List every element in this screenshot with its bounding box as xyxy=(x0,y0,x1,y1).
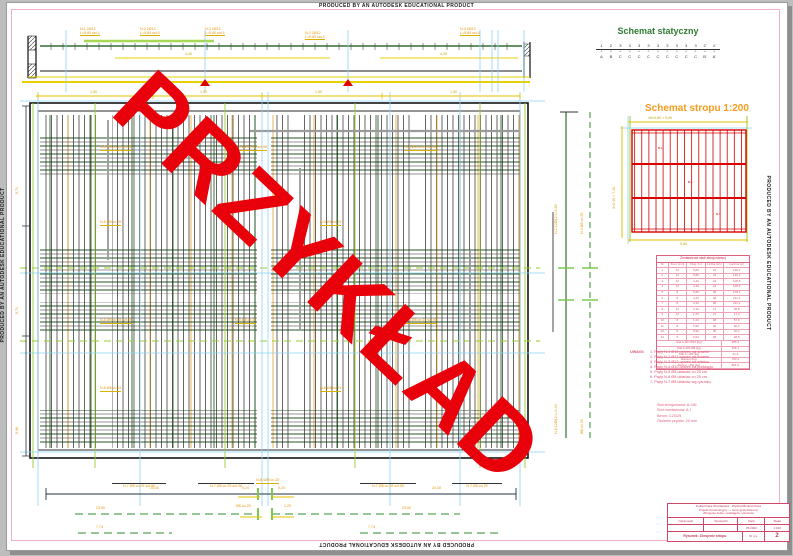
bottom-dimensions xyxy=(46,488,516,533)
beam-label: N-2 2Ø12L=5,80 szt.4 xyxy=(305,31,325,40)
materials-block: Stal zbrojeniowa: A-IIINStal montażowa: … xyxy=(657,403,697,424)
note-item: 6. Pręty N-6 Ø8 układać co 25 cm xyxy=(650,375,713,380)
dim-label: 24,40 xyxy=(150,487,159,491)
static-scheme: Schemat statyczny 123333333332'1' ▵▵▵▵▵▵… xyxy=(596,26,720,59)
drawing-number-value: 2 xyxy=(764,532,789,541)
right-schedule-label: N-2 12Ø12 L=5,80 xyxy=(554,204,558,234)
left-dim: 5,74 xyxy=(15,307,19,314)
notes-list: 1. Pręty N-1 Ø12 oprzeć na ścianie2. Prę… xyxy=(650,350,713,384)
right-bar-schedule xyxy=(553,112,598,438)
top-dim: 1,50 xyxy=(450,90,457,94)
tb-label: Opracował xyxy=(668,518,703,524)
dim-label: 0,24 xyxy=(278,487,285,491)
dim-label: 7,74 xyxy=(368,526,375,530)
dim-label: 23,90 xyxy=(402,507,411,511)
drawing-title: Rysunek: Zbrojenie stropu xyxy=(668,534,742,538)
tb-value xyxy=(703,525,737,531)
right-schedule-label: N-4 Ø8 co 25 xyxy=(580,213,584,234)
title-block-values: 05.2023 1:100 xyxy=(668,525,789,532)
note-item: 5. Pręty N-5 Ø8 układać co 25 cm xyxy=(650,370,713,375)
slab-dim-bottom: 9,84 xyxy=(680,242,687,246)
tb-value xyxy=(668,525,703,531)
tb-label: Data xyxy=(737,518,764,524)
steel-table-rows: 1125,80 24139,2 2125,80 24139,2 3124,40 … xyxy=(657,268,749,341)
plan-label: N-6 Ø8 co 25 xyxy=(320,387,341,392)
beam-section xyxy=(22,30,530,92)
material-line: Otulenie prętów: 20 mm xyxy=(657,419,697,424)
beam-dim: 4,40 xyxy=(185,52,192,56)
dim-label: 7,74 xyxy=(96,526,103,530)
beam-label: N-1 2Ø12L=5,80 szt.4 xyxy=(80,27,100,36)
tb-label: Sprawdził xyxy=(703,518,737,524)
slab-dim-left: 3×2,40 = 7,20 xyxy=(612,187,616,209)
col-header: Śred. [mm] xyxy=(668,263,687,267)
col-header: Dług. [m] xyxy=(686,263,705,267)
col-header: Łącznie [m] xyxy=(723,263,749,267)
title-block-labels: Opracował Sprawdził Data Skala xyxy=(668,518,789,525)
note-item: 7. Pręty N-7 Ø8 układać wg rysunku xyxy=(650,380,713,385)
left-dim: 5,96 xyxy=(15,427,19,434)
dim-label: 0,24 xyxy=(242,487,249,491)
plan-label: N-5 Ø8 co 25 xyxy=(235,319,256,324)
plan-label: N-5 Ø8 co 25 szt.96 xyxy=(405,146,437,151)
title-block-head-line: Zbrojenie żeber, podciągów i wieńców xyxy=(668,512,789,516)
slab-scheme-grid xyxy=(620,116,752,244)
sheet-overlay: PRODUCED BY AN AUTODESK EDUCATIONAL PROD… xyxy=(0,0,793,556)
cad-sheet: { "banner": {"text": "PRODUCED BY AN AUT… xyxy=(0,0,793,556)
slab-cell-label: B-1 xyxy=(688,180,693,184)
dim-label: 24,40 xyxy=(432,487,441,491)
static-scheme-numbers: 123333333332'1' xyxy=(596,43,720,48)
dim-label: 1,20 xyxy=(284,505,291,509)
slab-cell-label: B-1 xyxy=(716,212,721,216)
right-schedule-label: Ø8 co 25 xyxy=(580,419,584,434)
beam-label: N-3 2Ø12L=5,80 szt.4 xyxy=(205,27,225,36)
notes-label: UWAGI: xyxy=(630,350,644,355)
title-block-head: Politechnika Wrocławska · Wydział Budown… xyxy=(668,504,789,518)
plan-label: N-6 Ø8 co 25 xyxy=(100,387,121,392)
title-block: Politechnika Wrocławska · Wydział Budown… xyxy=(667,503,790,542)
beam-label: N-4 2Ø12L=5,80 szt.4 xyxy=(460,27,480,36)
title-block-bottom: Rysunek: Zbrojenie stropu Nr rys. 2 xyxy=(668,532,789,541)
static-scheme-letters: ABCCCCCCCCCB'A' xyxy=(596,54,720,59)
tb-value: 1:100 xyxy=(764,525,789,531)
plan-label: N-6 Ø8 co 25 xyxy=(100,221,121,226)
beam-dim: 4,40 xyxy=(440,52,447,56)
slab-cell-label: B-1 xyxy=(658,146,663,150)
dim-label: 23,90 xyxy=(96,507,105,511)
slab-scheme-title: Schemat stropu 1:200 xyxy=(645,103,749,114)
tb-label: Skala xyxy=(764,518,789,524)
col-header: Nr xyxy=(657,263,668,267)
note-item: 4. Pręty N-4 Ø10 oprzeć na podciągu xyxy=(650,365,713,370)
dim-label: Ø8 co 25 xyxy=(236,505,251,509)
drawing-number-label: Nr rys. xyxy=(742,532,764,541)
top-dim: 1,50 xyxy=(315,90,322,94)
slab-dim-top: 16×0,60 = 9,60 xyxy=(648,116,672,120)
static-scheme-title: Schemat statyczny xyxy=(596,26,720,36)
tb-value: 05.2023 xyxy=(737,525,764,531)
bottom-center-label: N-8 4Ø8 co 25 xyxy=(256,479,279,484)
left-dim: 5,74 xyxy=(15,187,19,194)
col-header: Liczba [szt.] xyxy=(705,263,724,267)
top-dim: 1,50 xyxy=(90,90,97,94)
beam-label: N-2 2Ø12L=5,80 szt.4 xyxy=(140,27,160,36)
plan-label: N-5 Ø8 co 25 szt.96 xyxy=(100,319,132,324)
bottom-overbar-label: N-7 Ø8 co 25 szt.96 xyxy=(360,483,416,488)
notes-block: UWAGI: 1. Pręty N-1 Ø12 oprzeć na ściani… xyxy=(630,350,713,384)
